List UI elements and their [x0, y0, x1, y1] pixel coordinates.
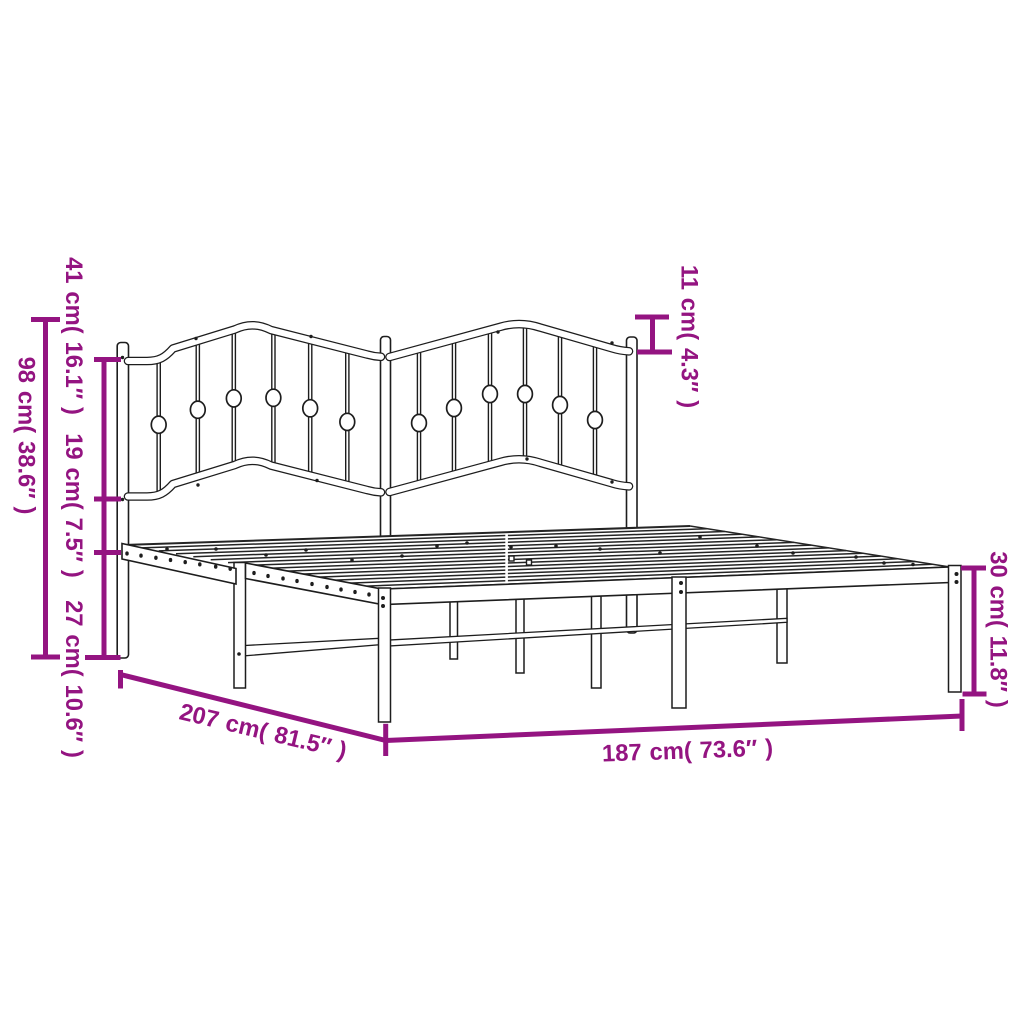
svg-text:19 cm( 7.5″ ): 19 cm( 7.5″ ): [60, 433, 87, 578]
svg-text:27 cm( 10.6″ ): 27 cm( 10.6″ ): [60, 600, 87, 758]
svg-text:30 cm( 11.8″ ): 30 cm( 11.8″ ): [985, 551, 1012, 708]
svg-text:11 cm( 4.3″ ): 11 cm( 4.3″ ): [676, 265, 703, 408]
svg-text:41 cm( 16.1″ ): 41 cm( 16.1″ ): [60, 257, 87, 415]
svg-text:98 cm( 38.6″ ): 98 cm( 38.6″ ): [13, 357, 40, 515]
